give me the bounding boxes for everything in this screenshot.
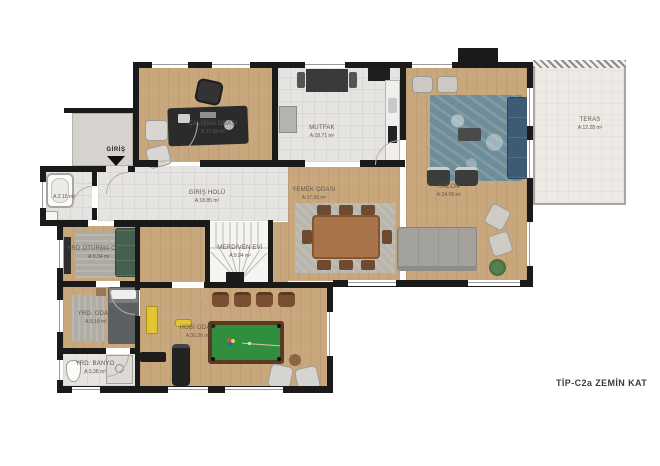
window <box>527 88 533 126</box>
coffee-table <box>458 128 481 141</box>
wall-segment <box>205 220 210 282</box>
sectional-sofa <box>397 227 477 271</box>
dining-chair <box>361 260 375 270</box>
window <box>168 387 208 393</box>
window <box>225 387 283 393</box>
window <box>348 280 396 286</box>
wall-segment <box>135 316 140 392</box>
wall-segment <box>272 62 278 167</box>
wall-segment <box>40 166 98 172</box>
room-label-wc: A:2.16 m² <box>53 194 75 201</box>
room-label-yrd-banyo: YRD. BANYO A:3.38 m² <box>75 361 114 375</box>
dining-chair <box>361 205 375 215</box>
treadmill <box>172 344 190 386</box>
window <box>468 280 520 286</box>
sofa-blue <box>507 97 528 179</box>
nightstand <box>96 288 106 296</box>
office-chair <box>194 78 224 107</box>
dining-chair <box>382 230 392 244</box>
room-area: A:17.56 m² <box>292 195 336 202</box>
window <box>412 62 452 68</box>
pool-table <box>208 321 284 364</box>
room-area: A:30.26 m² <box>179 333 216 340</box>
window <box>152 62 188 68</box>
wall-segment <box>128 166 135 172</box>
window <box>327 312 333 356</box>
room-name: MERDİVEN EVİ <box>217 245 262 253</box>
entrance-arrow-icon <box>107 156 125 166</box>
side-table <box>289 354 301 366</box>
room-area: A:9.18 m² <box>78 319 115 326</box>
room-name: ÇALIŞMA ODASI <box>189 121 238 129</box>
wall-segment <box>64 108 135 113</box>
room-label-yrd-odasi: YRD. ODASI A:9.18 m² <box>78 311 115 325</box>
room-area: A:34.58 m² <box>437 192 461 199</box>
wall-segment <box>114 220 207 227</box>
wall-segment <box>204 282 333 288</box>
room-area: A:21.58 m² <box>189 129 238 136</box>
window <box>527 140 533 178</box>
teras-hatch-wall <box>533 60 626 68</box>
wall-segment <box>135 220 140 290</box>
window <box>527 222 533 266</box>
wall-segment <box>400 62 406 140</box>
bar-stool <box>234 292 251 307</box>
window <box>57 240 63 268</box>
wall-segment <box>57 281 96 287</box>
room-label-calisma: ÇALIŞMA ODASI A:21.58 m² <box>189 121 238 135</box>
wall-segment <box>57 348 106 354</box>
desk-monitor <box>200 112 216 118</box>
armchair <box>412 76 433 93</box>
wall-segment <box>133 62 139 166</box>
room-label-teras: TERAS A:12.28 m² <box>578 117 602 131</box>
dining-chair <box>317 205 331 215</box>
sink <box>388 98 397 113</box>
gym-machine-yellow <box>146 306 158 334</box>
dining-chair <box>302 230 312 244</box>
kitchen-chair <box>349 72 357 88</box>
wall-segment <box>268 220 273 282</box>
room-area: A:18.71 m² <box>309 133 335 140</box>
wall-segment <box>458 48 498 68</box>
room-area: A:3.38 m² <box>75 369 114 376</box>
room-name: GİRİŞ HOLÜ <box>189 190 226 198</box>
window <box>40 182 46 208</box>
room-name: MUTFAK <box>309 125 335 133</box>
room-name: YEMEK ODASI <box>292 187 336 195</box>
window <box>57 360 63 380</box>
window <box>57 300 63 332</box>
room-label-yemek: YEMEK ODASI A:17.56 m² <box>292 187 336 201</box>
fridge <box>279 106 297 133</box>
kitchen-table <box>306 69 348 92</box>
room-name: SALON <box>437 184 461 192</box>
plant <box>489 259 506 276</box>
bar-stool <box>278 292 295 307</box>
room-name: HOBİ ODASI <box>179 325 216 333</box>
wall-segment <box>140 282 172 288</box>
pool-balls <box>226 337 236 347</box>
wall-segment <box>92 166 97 186</box>
pool-pocket <box>277 324 281 328</box>
bar-stool <box>212 292 229 307</box>
room-name: YRD. ODASI <box>78 311 115 319</box>
plan-title: TİP-C2a ZEMİN KAT <box>556 378 647 388</box>
wall-segment <box>92 208 97 220</box>
dining-table <box>312 215 380 259</box>
dining-chair <box>317 260 331 270</box>
room-label-merdiven: MERDİVEN EVİ A:9.94 m² <box>217 245 262 259</box>
room-label-mutfak: MUTFAK A:18.71 m² <box>309 125 335 139</box>
gym-bench <box>140 352 166 362</box>
room-label-salon: SALON A:34.58 m² <box>437 184 461 198</box>
entrance-label: GİRİŞ <box>106 147 125 153</box>
wall-segment <box>200 160 277 167</box>
bar-stool <box>256 292 273 307</box>
kitchen-chair <box>297 72 305 88</box>
floor-teras <box>533 66 626 205</box>
stair-newel-wall <box>226 272 244 282</box>
room-label-yrd-oturma: YRD.OTURMA ODASI A:9.34 m² <box>67 246 131 260</box>
room-area: A:9.94 m² <box>217 253 262 260</box>
room-area: A:12.28 m² <box>578 125 602 132</box>
room-area: A:2.16 m² <box>53 194 75 201</box>
room-label-hobi: HOBİ ODASI A:30.26 m² <box>179 325 216 339</box>
room-name: YRD. BANYO <box>75 361 114 369</box>
floor-plan: GİRİŞ ÇALIŞMA ODASI A:21.58 m² MUTFAK A:… <box>0 0 660 466</box>
room-name: YRD.OTURMA ODASI <box>67 246 131 254</box>
window <box>72 387 100 393</box>
pool-pocket <box>277 357 281 361</box>
room-area: A:18.85 m² <box>189 198 226 205</box>
window <box>305 62 345 68</box>
room-label-giris-holu: GİRİŞ HOLÜ A:18.85 m² <box>189 190 226 204</box>
room-area: A:9.34 m² <box>67 254 131 261</box>
dining-chair <box>339 260 353 270</box>
pool-pocket <box>211 357 215 361</box>
dining-chair <box>339 205 353 215</box>
armchair <box>437 76 458 93</box>
window <box>212 62 250 68</box>
room-name: TERAS <box>578 117 602 125</box>
